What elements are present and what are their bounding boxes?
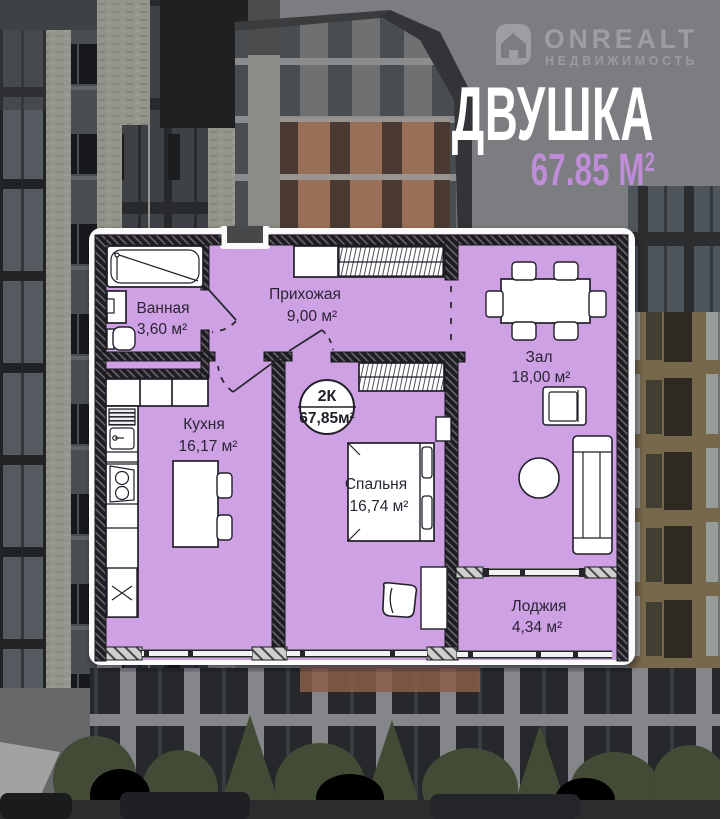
svg-text:4,34 м²: 4,34 м²	[512, 619, 562, 636]
svg-text:18,00 м²: 18,00 м²	[512, 369, 571, 386]
svg-text:Ванная: Ванная	[136, 300, 189, 317]
svg-text:Кухня: Кухня	[183, 416, 224, 433]
svg-text:16,74 м²: 16,74 м²	[350, 498, 409, 515]
svg-text:НЕДВИЖИМОСТЬ: НЕДВИЖИМОСТЬ	[545, 54, 698, 68]
svg-text:Лоджия: Лоджия	[512, 598, 567, 615]
svg-text:2К: 2К	[318, 388, 337, 405]
svg-text:Прихожая: Прихожая	[269, 286, 341, 303]
svg-text:3,60 м²: 3,60 м²	[137, 321, 187, 338]
svg-text:Зал: Зал	[525, 349, 552, 366]
svg-text:16,17 м²: 16,17 м²	[179, 438, 238, 455]
svg-text:9,00 м²: 9,00 м²	[287, 308, 337, 325]
svg-text:Спальня: Спальня	[345, 476, 407, 493]
svg-text:ONREALT: ONREALT	[544, 24, 698, 54]
svg-text:67,85м²: 67,85м²	[299, 410, 354, 427]
